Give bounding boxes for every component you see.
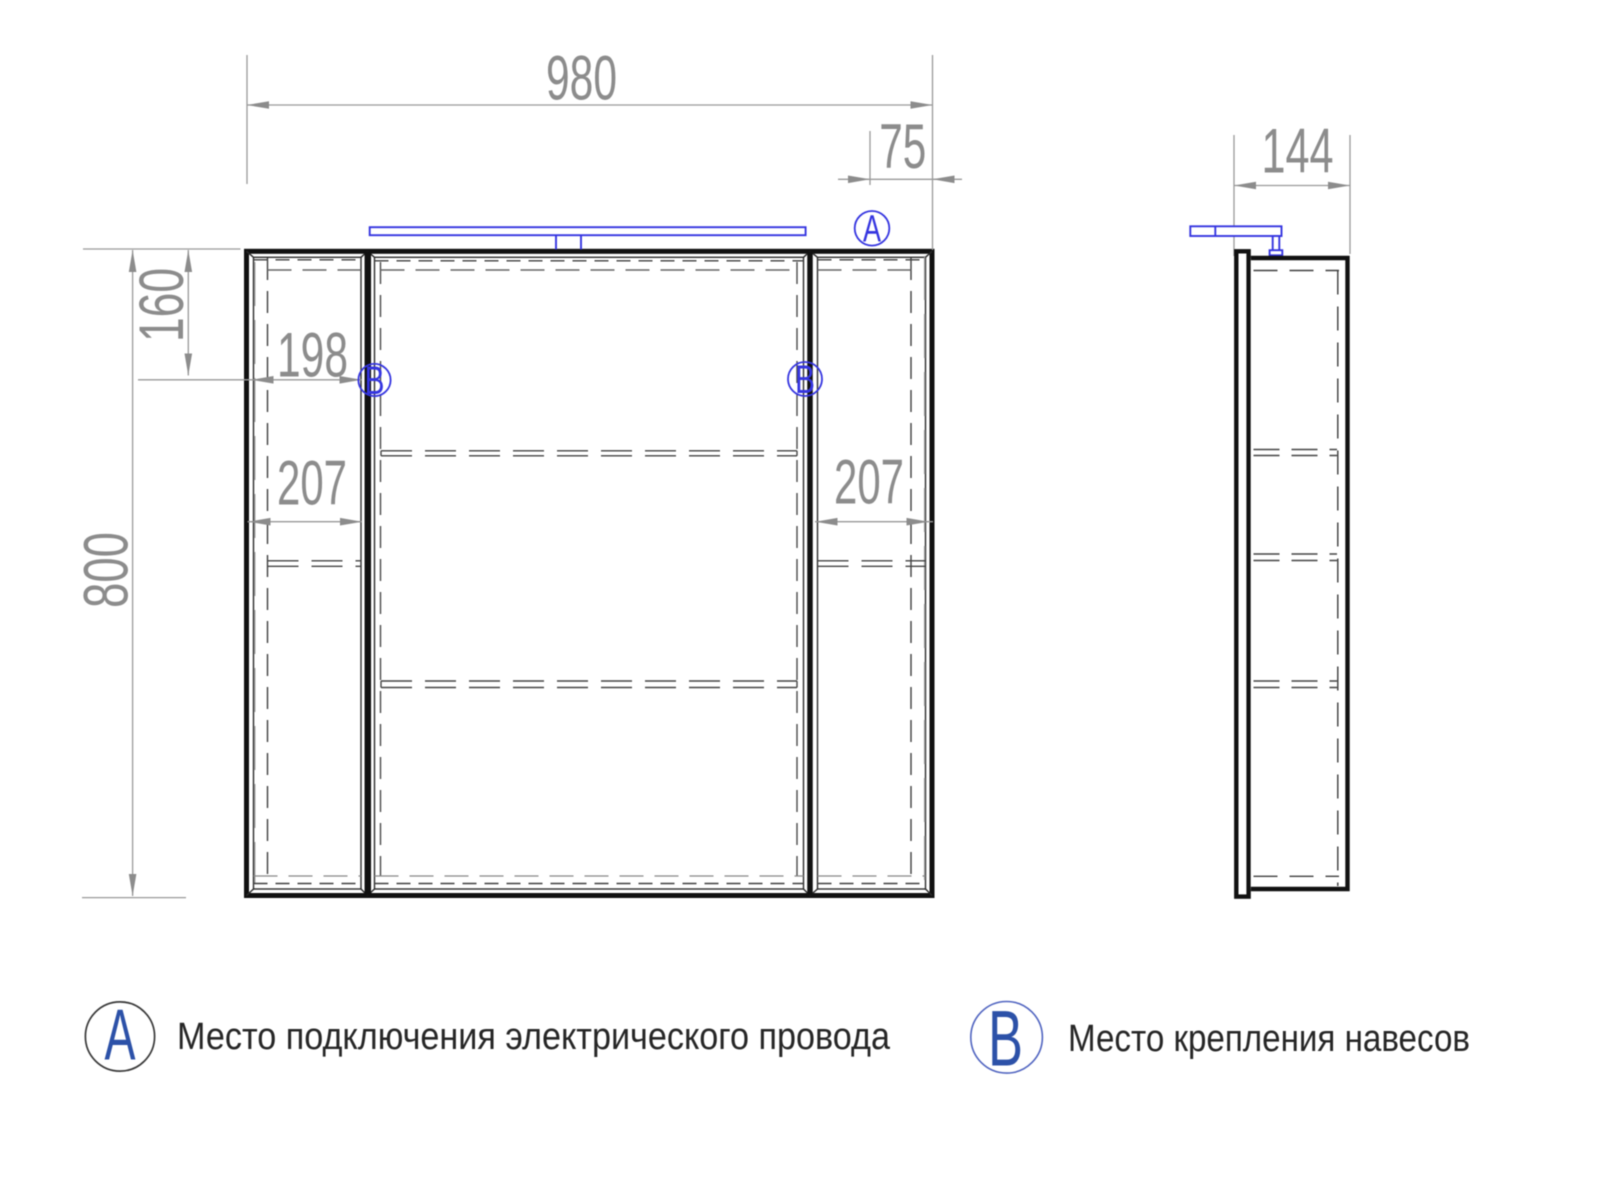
svg-text:Место крепления навесов: Место крепления навесов: [1068, 1018, 1470, 1060]
svg-text:Место подключения электрическо: Место подключения электрического провода: [177, 1016, 891, 1058]
svg-text:B: B: [795, 358, 815, 402]
svg-text:207: 207: [277, 449, 347, 519]
svg-text:B: B: [988, 994, 1023, 1083]
svg-text:980: 980: [546, 44, 617, 114]
svg-text:A: A: [105, 996, 136, 1076]
svg-text:207: 207: [834, 448, 904, 518]
svg-text:B: B: [365, 359, 385, 403]
svg-text:160: 160: [127, 268, 197, 342]
svg-text:800: 800: [72, 532, 142, 608]
svg-text:144: 144: [1262, 117, 1334, 187]
svg-text:198: 198: [277, 321, 348, 391]
svg-text:75: 75: [879, 112, 926, 182]
svg-text:A: A: [863, 209, 881, 251]
